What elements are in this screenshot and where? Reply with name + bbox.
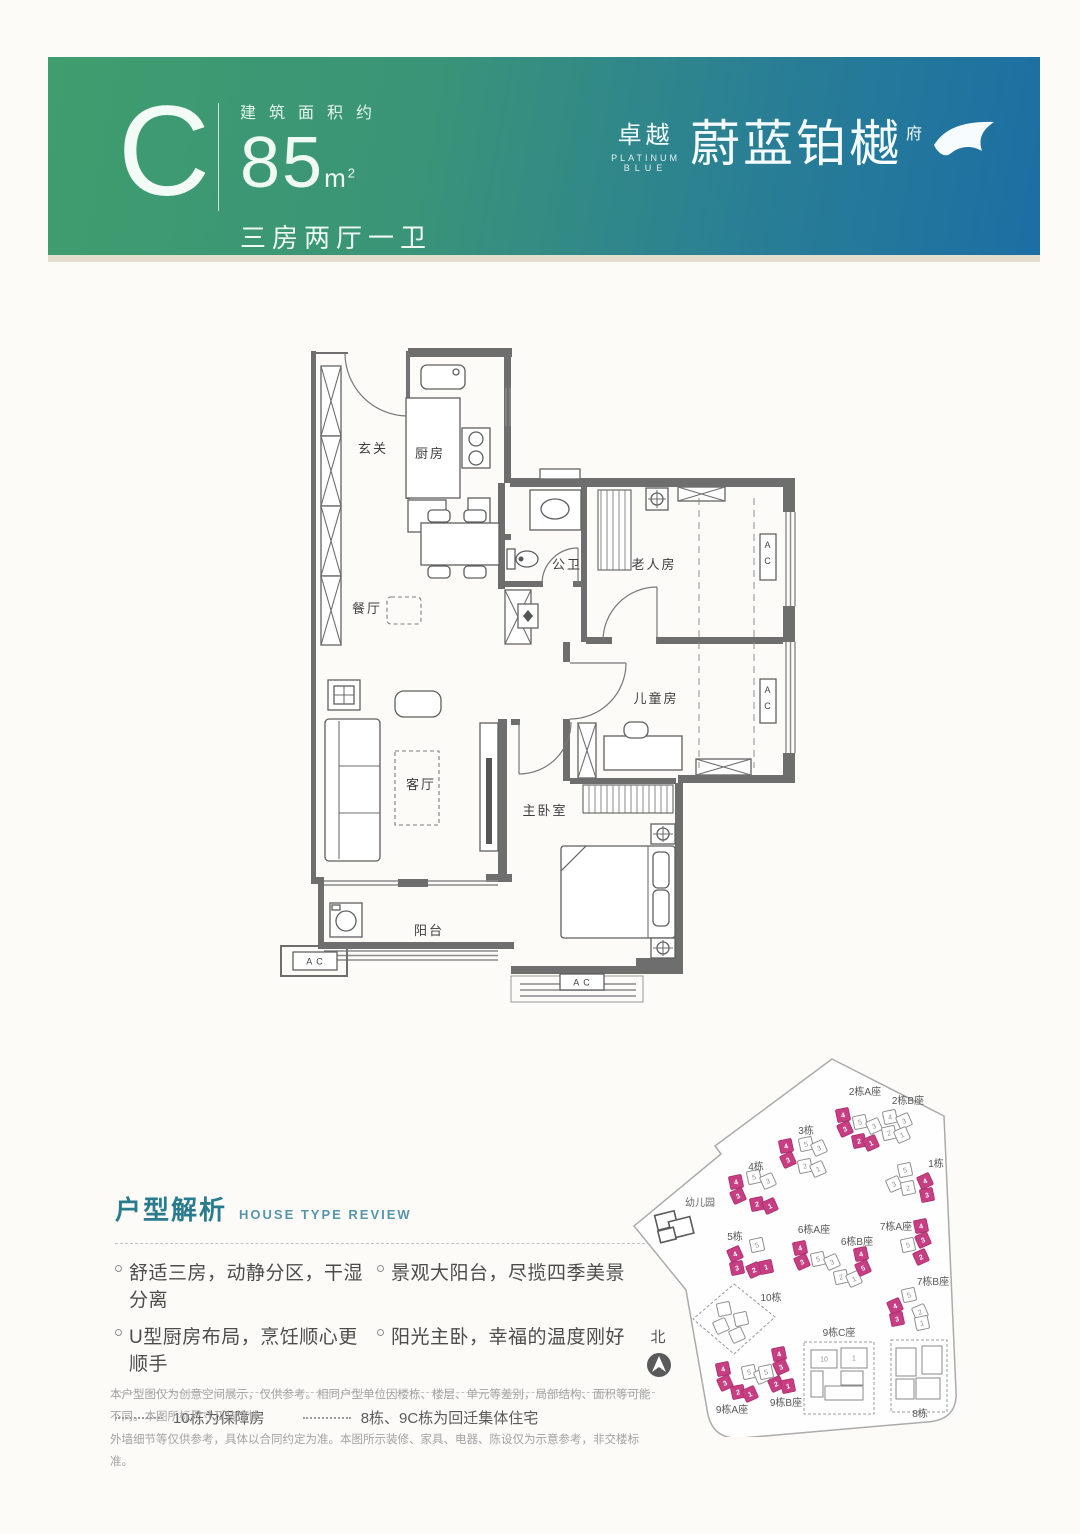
left-shaft-column bbox=[321, 366, 341, 645]
room-label: 阳台 bbox=[414, 923, 444, 938]
layout-description: 三房两厅一卫 bbox=[240, 218, 432, 255]
highlighted-unit-square: 4 bbox=[728, 1174, 743, 1189]
ac-label: A C bbox=[306, 957, 324, 967]
bullet-text: U型厨房布局，烹饪顺心更顺手 bbox=[129, 1322, 377, 1376]
unit-square bbox=[733, 1311, 748, 1326]
ceiling-unit-icon-2 bbox=[651, 938, 675, 958]
ac-label: C bbox=[764, 556, 772, 566]
unit-number: 1 bbox=[852, 1356, 856, 1363]
header-banner: C 建筑面积约 85m2 三房两厅一卫 卓越 PLATINUM BLUE 蔚蓝铂… bbox=[48, 57, 1040, 255]
north-arrow-icon bbox=[647, 1353, 671, 1377]
elder-wardrobe bbox=[598, 490, 631, 570]
bay-dash-lines bbox=[699, 498, 754, 768]
review-bullets: 舒适三房，动静分区，干湿分离景观大阳台，尽揽四季美景U型厨房布局，烹饪顺心更顺手… bbox=[115, 1258, 655, 1376]
building-label: 2栋B座 bbox=[892, 1094, 924, 1107]
area-unit: m bbox=[324, 163, 348, 193]
highlighted-unit-square: 4 bbox=[853, 1246, 868, 1261]
floor-plate bbox=[896, 1379, 914, 1399]
unit-square: 2 bbox=[900, 1180, 915, 1195]
kid-side-panel bbox=[578, 723, 596, 778]
toilet-tank bbox=[507, 549, 515, 569]
brand-left: 卓越 PLATINUM BLUE bbox=[611, 115, 680, 173]
bullet-dot-icon bbox=[115, 1265, 122, 1272]
highlighted-unit-square: 1 bbox=[758, 1259, 773, 1274]
bullet-text: 舒适三房，动静分区，干湿分离 bbox=[129, 1258, 377, 1312]
unit-square: 5 bbox=[897, 1162, 912, 1177]
building-label: 4栋 bbox=[748, 1160, 764, 1173]
building-label: 7栋B座 bbox=[917, 1275, 949, 1288]
ac-label: C bbox=[764, 701, 772, 711]
floor-plate bbox=[922, 1346, 942, 1374]
floor-plate bbox=[825, 1386, 863, 1400]
room-label: 玄关 bbox=[358, 441, 388, 456]
building-label: 1栋 bbox=[928, 1157, 944, 1170]
brand-cn-main: 蔚蓝铂樾 bbox=[690, 119, 902, 169]
top-right-bay bbox=[678, 487, 725, 501]
pillow bbox=[653, 852, 669, 888]
room-label: 厨房 bbox=[415, 446, 445, 461]
unit-square: 5 bbox=[758, 1364, 773, 1379]
room-label: 餐厅 bbox=[352, 601, 382, 616]
building-label: 5栋 bbox=[727, 1230, 743, 1243]
building-label: 9栋C座 bbox=[823, 1326, 856, 1339]
desk-chair bbox=[624, 722, 648, 738]
area-label: 建筑面积约 bbox=[240, 99, 432, 123]
building-label: 7栋A座 bbox=[880, 1220, 912, 1233]
north-label: 北 bbox=[650, 1329, 665, 1346]
highlighted-unit-square: 4 bbox=[835, 1107, 850, 1122]
room-label: 公卫 bbox=[552, 557, 582, 572]
disclaimer-line-1: 本户型图仅为创意空间展示，仅供参考。相同户型单位因楼栋、楼层、单元等差别，局部结… bbox=[110, 1384, 655, 1429]
review-bullet: 景观大阳台，尽揽四季美景 bbox=[377, 1258, 655, 1312]
brochure-page: { "banner": { "unit_letter": "C", "area_… bbox=[0, 0, 1080, 1534]
floor-plate bbox=[841, 1371, 863, 1385]
dining-table bbox=[421, 523, 499, 565]
ac-label: A bbox=[764, 685, 771, 695]
building-label: 6栋B座 bbox=[841, 1235, 873, 1248]
side-table bbox=[395, 691, 441, 717]
duct-shaft bbox=[505, 590, 538, 644]
floor-plate bbox=[896, 1348, 916, 1376]
unit-square: 4 bbox=[882, 1109, 897, 1124]
fan-coil-box bbox=[328, 680, 360, 710]
building-label: 3栋 bbox=[798, 1124, 814, 1137]
kitchen-sink bbox=[421, 365, 465, 389]
building-label: 8栋 bbox=[912, 1407, 928, 1420]
fresh-air-duct bbox=[540, 469, 580, 479]
site-plan: 北 幼儿园 4321532栋A座43212栋B座4353213栋4353214栋… bbox=[628, 1053, 1052, 1437]
brand-en-1: PLATINUM bbox=[611, 153, 680, 163]
ac-label: A C bbox=[573, 978, 591, 988]
ceiling-unit-icon bbox=[651, 824, 675, 844]
brand-cn-suffix: 府 bbox=[906, 120, 922, 144]
sofa bbox=[325, 719, 380, 861]
bullet-text: 景观大阳台，尽揽四季美景 bbox=[391, 1258, 625, 1285]
area-value: 85m2 bbox=[240, 125, 432, 216]
brand-logo: 卓越 PLATINUM BLUE 蔚蓝铂樾 府 bbox=[611, 115, 996, 173]
unit-square: 5 bbox=[749, 1237, 764, 1252]
kindergarten-label: 幼儿园 bbox=[685, 1196, 715, 1209]
shaft-hatches bbox=[321, 366, 751, 778]
highlighted-unit-square: 1 bbox=[780, 1378, 795, 1393]
room-label: 儿童房 bbox=[633, 691, 678, 706]
room-label: 客厅 bbox=[406, 777, 436, 792]
disclaimer-line-2: 外墙细节等仅供参考，具体以合同约定为准。本图所示装修、家具、电器、陈设仅为示意参… bbox=[110, 1429, 655, 1474]
disclaimer: 本户型图仅为创意空间展示，仅供参考。相同户型单位因楼栋、楼层、单元等差别，局部结… bbox=[110, 1384, 655, 1474]
floor-plan: 玄关厨房公卫老人房餐厅客厅儿童房主卧室阳台 ACACA CA C bbox=[268, 338, 838, 1038]
unit-square bbox=[716, 1301, 731, 1316]
review-title-cn: 户型解析 bbox=[115, 1190, 227, 1227]
review-title: 户型解析 HOUSE TYPE REVIEW bbox=[115, 1190, 655, 1227]
elder-ceiling-unit-icon bbox=[646, 488, 668, 510]
unit-square: 5 bbox=[900, 1237, 915, 1252]
building-label: 2栋A座 bbox=[849, 1085, 881, 1098]
unit-square: 1 bbox=[914, 1315, 929, 1330]
pillow-2 bbox=[653, 890, 669, 926]
highlighted-unit-square: 3 bbox=[889, 1311, 904, 1326]
brand-cn-small: 卓越 bbox=[611, 115, 680, 150]
floor-plate bbox=[811, 1371, 823, 1397]
master-wardrobe bbox=[583, 785, 673, 813]
highlighted-unit-square: 4 bbox=[792, 1240, 807, 1255]
highlighted-unit-square: 4 bbox=[778, 1138, 793, 1153]
tv bbox=[486, 758, 492, 844]
banner-divider bbox=[218, 103, 219, 211]
bullet-dot-icon bbox=[377, 1329, 384, 1336]
highlighted-unit-square: 3 bbox=[919, 1187, 934, 1202]
review-bullet: 阳光主卧，幸福的温度刚好 bbox=[377, 1322, 655, 1376]
highlighted-unit-square: 4 bbox=[913, 1218, 928, 1233]
bullet-dot-icon bbox=[115, 1329, 122, 1336]
room-label: 老人房 bbox=[631, 557, 676, 572]
floor-plate bbox=[916, 1378, 940, 1399]
building-label: 9栋A座 bbox=[716, 1403, 748, 1416]
desk bbox=[604, 736, 682, 770]
area-block: 建筑面积约 85m2 三房两厅一卫 bbox=[240, 99, 432, 255]
area-number: 85 bbox=[240, 123, 324, 203]
unit-square: 5 bbox=[852, 1114, 867, 1129]
ac-label: A bbox=[764, 540, 771, 550]
review-bullet: 舒适三房，动静分区，干湿分离 bbox=[115, 1258, 377, 1312]
building-label: 10栋 bbox=[760, 1291, 781, 1304]
building-label: 9栋B座 bbox=[770, 1396, 802, 1409]
unit-square: 5 bbox=[901, 1287, 916, 1302]
highlighted-unit-square: 4 bbox=[715, 1361, 730, 1376]
bullet-text: 阳光主卧，幸福的温度刚好 bbox=[391, 1322, 625, 1349]
unit-number: 10 bbox=[820, 1357, 828, 1364]
brand-en-2: BLUE bbox=[611, 163, 680, 173]
highlighted-unit-square: 3 bbox=[729, 1260, 744, 1275]
bullet-dot-icon bbox=[377, 1265, 384, 1272]
whale-tail-flag-icon bbox=[932, 119, 996, 163]
dashed-separator bbox=[115, 1243, 655, 1244]
review-title-en: HOUSE TYPE REVIEW bbox=[239, 1207, 412, 1222]
room-label: 主卧室 bbox=[522, 803, 567, 818]
review-bullet: U型厨房布局，烹饪顺心更顺手 bbox=[115, 1322, 377, 1376]
balcony-slider bbox=[324, 879, 498, 887]
kid-bay bbox=[696, 759, 751, 775]
area-unit-exp: 2 bbox=[348, 165, 357, 180]
unit-type-letter: C bbox=[94, 53, 234, 251]
sideboard bbox=[387, 597, 421, 624]
building-label: 6栋A座 bbox=[798, 1223, 830, 1236]
